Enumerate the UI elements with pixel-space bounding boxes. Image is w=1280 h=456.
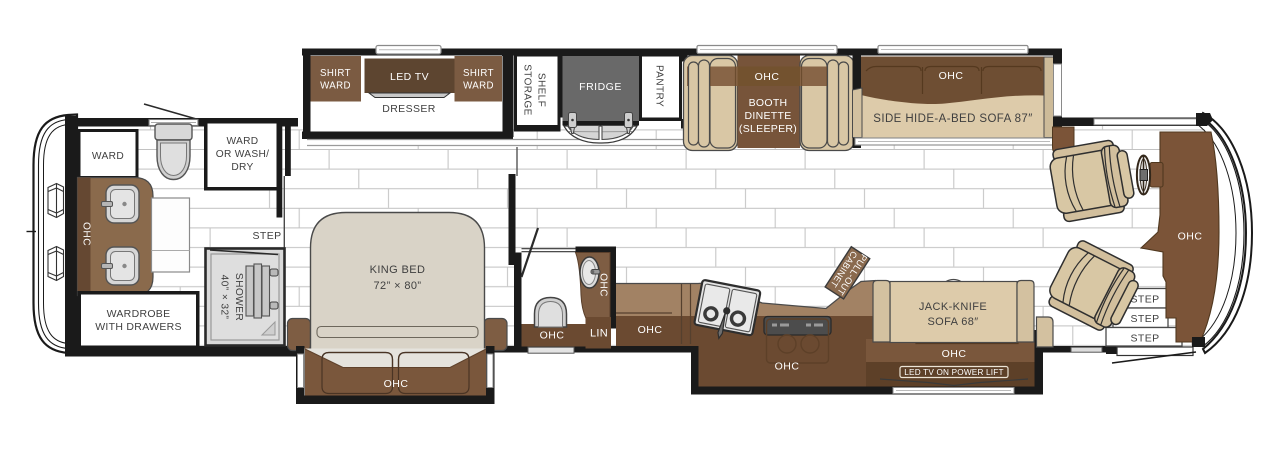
svg-text:OHC: OHC (384, 378, 409, 390)
svg-text:SHIRT: SHIRT (320, 68, 351, 79)
svg-text:OHC: OHC (939, 70, 964, 82)
svg-text:WARD: WARD (320, 81, 351, 92)
svg-text:WITH DRAWERS: WITH DRAWERS (95, 321, 182, 333)
svg-text:PANTRY: PANTRY (654, 65, 665, 107)
svg-text:WARD: WARD (227, 136, 259, 147)
svg-text:SIDE HIDE-A-BED SOFA 87″: SIDE HIDE-A-BED SOFA 87″ (873, 113, 1032, 125)
svg-text:STEP: STEP (252, 230, 281, 242)
svg-text:FRIDGE: FRIDGE (579, 81, 622, 93)
svg-text:JACK-KNIFE: JACK-KNIFE (919, 301, 987, 313)
svg-text:OHC: OHC (638, 324, 663, 336)
svg-text:DRESSER: DRESSER (382, 103, 436, 115)
svg-text:OHC: OHC (540, 330, 565, 342)
svg-text:40” × 32”: 40” × 32” (219, 275, 230, 320)
svg-text:OR WASH/: OR WASH/ (216, 149, 270, 160)
svg-text:OHC: OHC (775, 361, 800, 373)
svg-text:WARDROBE: WARDROBE (107, 308, 171, 320)
svg-text:OHC: OHC (755, 71, 780, 83)
svg-text:STEP: STEP (1130, 294, 1159, 306)
svg-text:DRY: DRY (231, 162, 253, 173)
svg-text:72” × 80”: 72” × 80” (374, 280, 422, 292)
svg-text:SHOWER: SHOWER (233, 273, 244, 321)
svg-text:LIN: LIN (590, 328, 608, 340)
svg-text:STEP: STEP (1130, 333, 1159, 345)
svg-text:OHC: OHC (1178, 231, 1203, 243)
svg-text:WARD: WARD (92, 151, 124, 162)
svg-text:OHC: OHC (81, 222, 92, 246)
svg-text:DINETTE: DINETTE (744, 110, 791, 122)
svg-text:SHELF: SHELF (536, 73, 547, 107)
svg-text:WARD: WARD (463, 81, 494, 92)
svg-text:KING BED: KING BED (370, 264, 426, 276)
svg-text:BOOTH: BOOTH (749, 97, 788, 109)
svg-text:(SLEEPER): (SLEEPER) (739, 123, 797, 135)
svg-text:LED TV ON POWER LIFT: LED TV ON POWER LIFT (904, 368, 1003, 377)
svg-text:SOFA 68″: SOFA 68″ (927, 316, 978, 328)
svg-text:STORAGE: STORAGE (522, 64, 533, 116)
svg-text:OHC: OHC (942, 348, 967, 360)
svg-text:STEP: STEP (1130, 313, 1159, 325)
svg-text:SHIRT: SHIRT (463, 68, 494, 79)
svg-text:LED TV: LED TV (390, 71, 429, 83)
